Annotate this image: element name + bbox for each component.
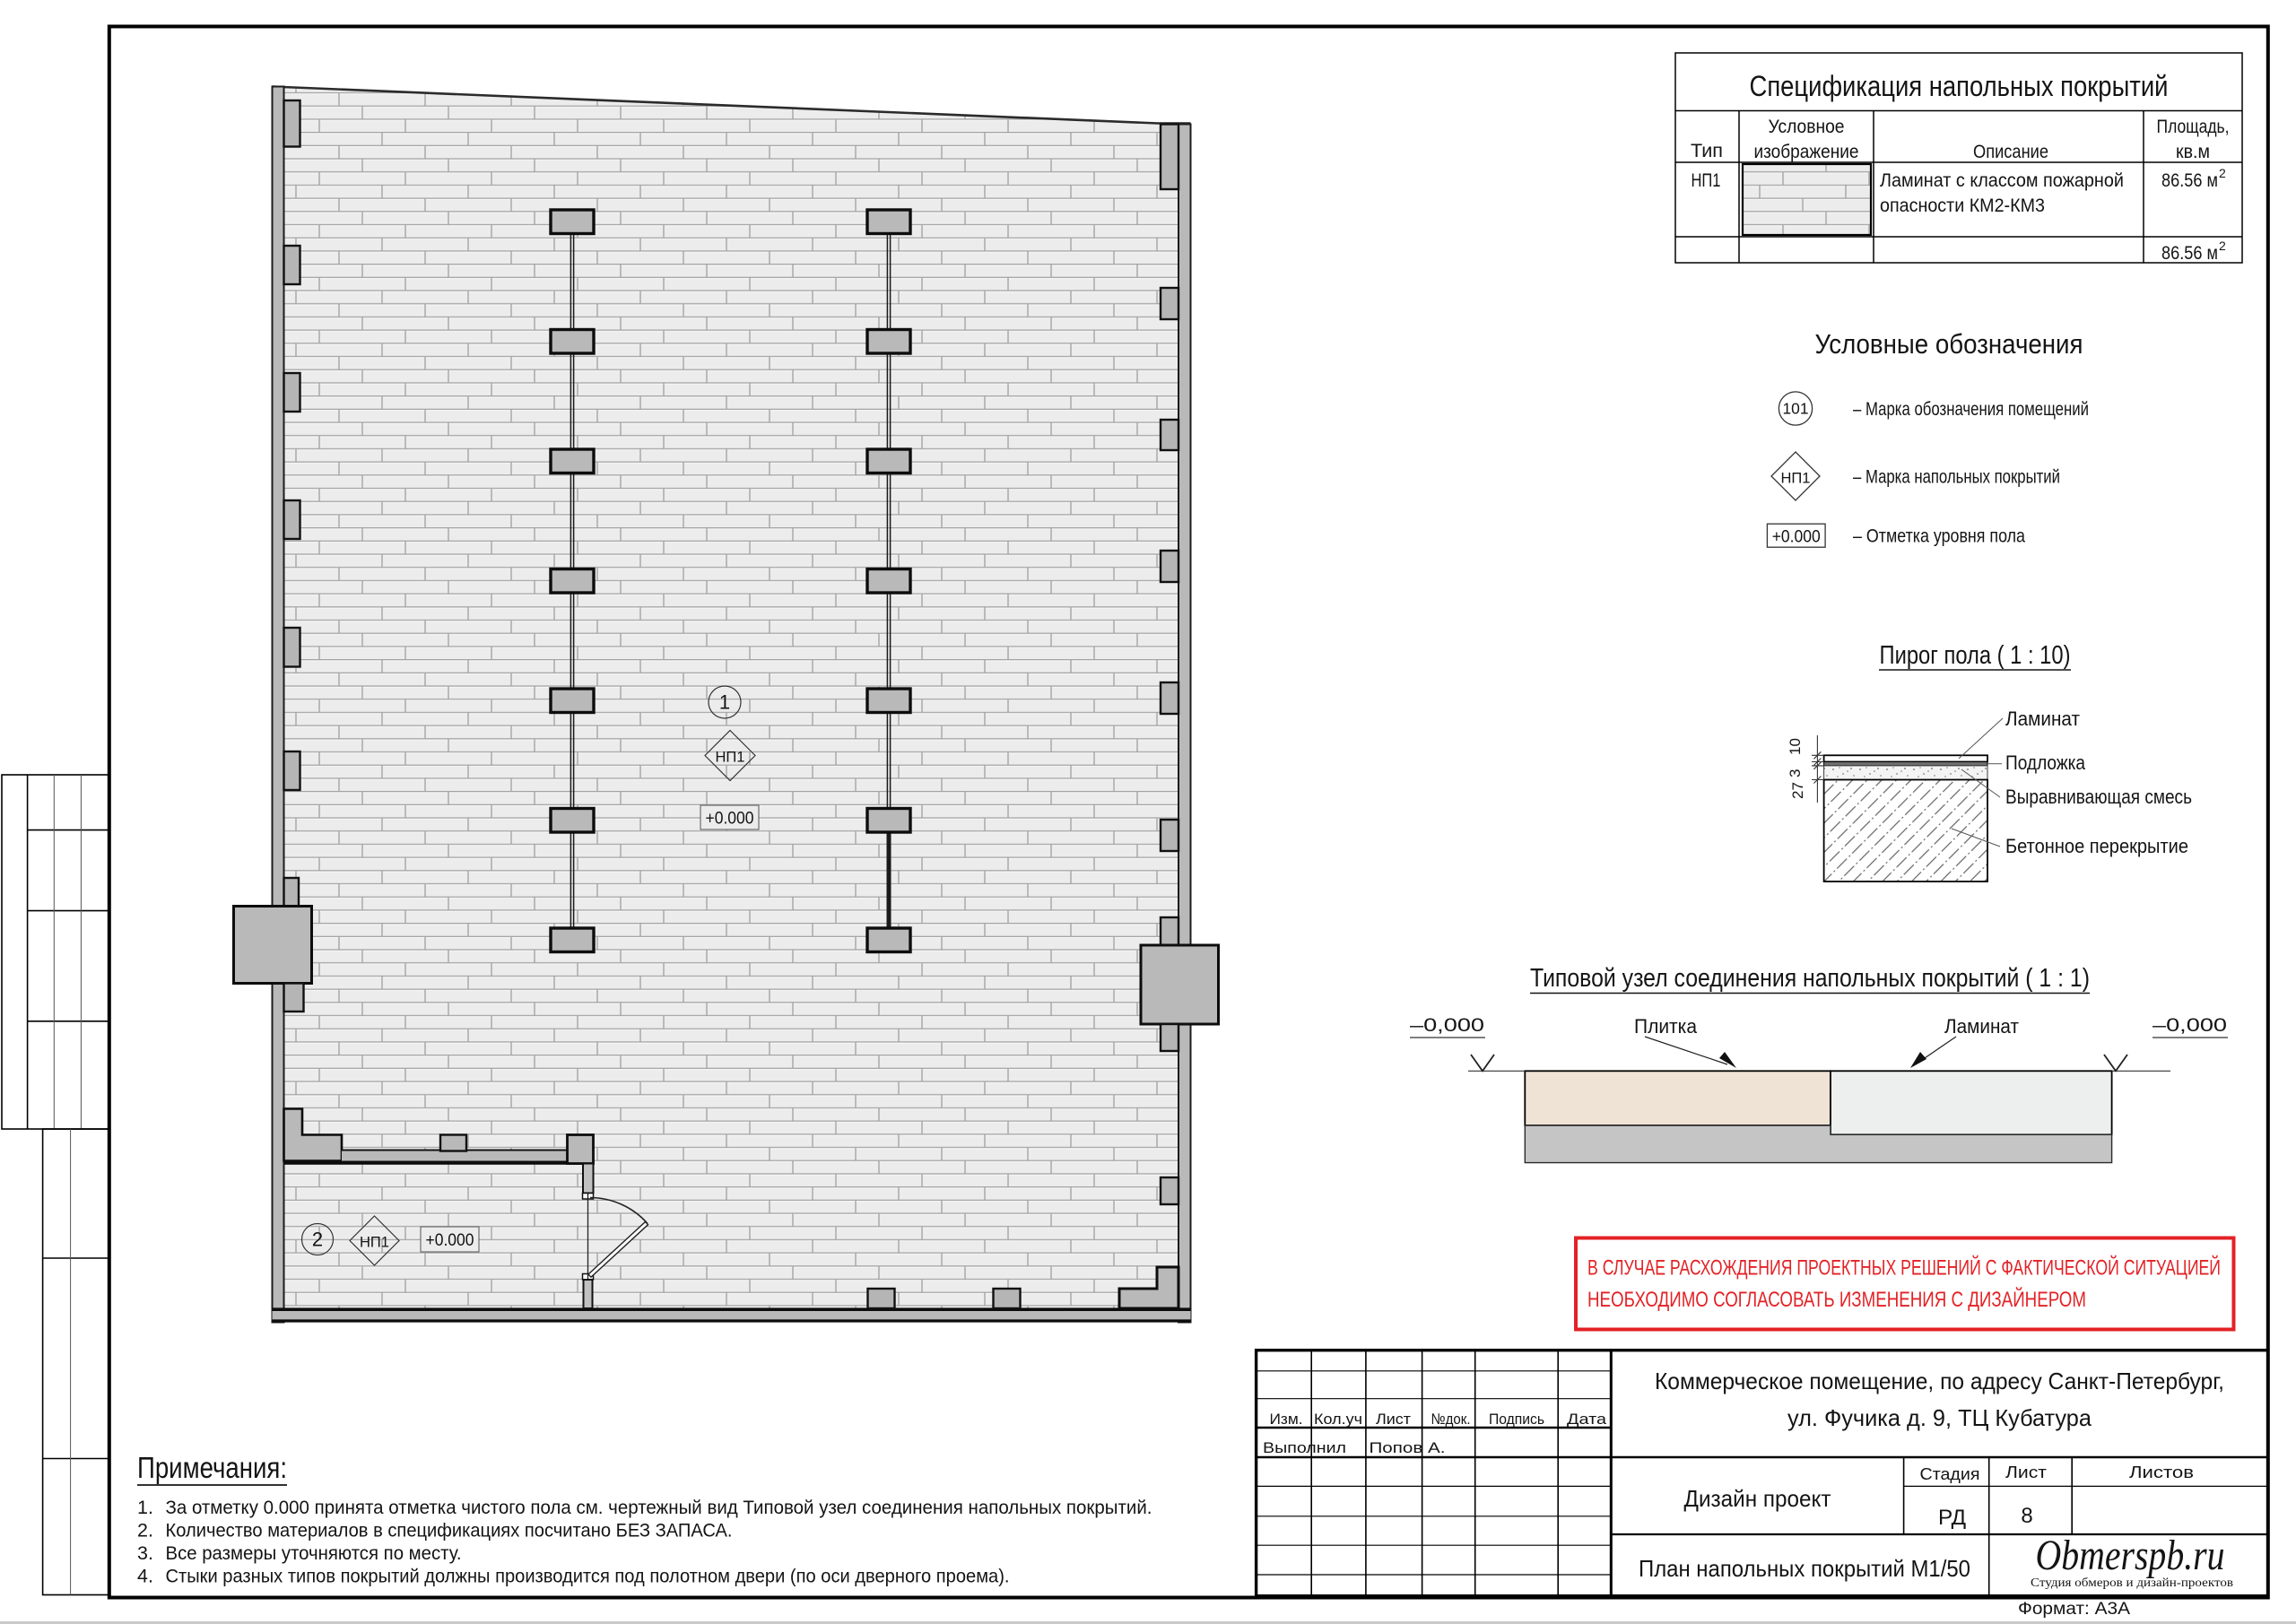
svg-text:+0.000: +0.000 [706,810,754,829]
svg-text:Спецификация напольных покрыти: Спецификация напольных покрытий [1750,70,2169,102]
svg-text:кв.м: кв.м [2176,142,2210,162]
svg-text:Площадь,: Площадь, [2157,117,2230,137]
svg-text:86.56 м: 86.56 м [2161,170,2218,191]
svg-text:Кол.уч: Кол.уч [1314,1411,1362,1428]
svg-text:3.: 3. [137,1542,153,1564]
svg-text:Стадия: Стадия [1920,1465,1980,1483]
svg-text:За отметку 0.000 принята отмет: За отметку 0.000 принята отметка чистого… [166,1497,1152,1518]
svg-text:Листов: Листов [2129,1463,2194,1481]
svg-text:НП1: НП1 [716,749,745,766]
svg-text:+0.000: +0.000 [426,1231,474,1250]
svg-text:Лист: Лист [1376,1411,1411,1428]
svg-text:Попов А.: Попов А. [1370,1439,1446,1456]
svg-text:Изм.: Изм. [1270,1411,1303,1428]
svg-text:Условные обозначения: Условные обозначения [1815,328,2083,360]
svg-text:Ламинат с классом пожарной: Ламинат с классом пожарной [1880,170,2124,191]
svg-text:101: 101 [1783,400,1809,418]
svg-text:Все размеры уточняются по мест: Все размеры уточняются по месту. [166,1542,462,1564]
svg-text:Описание: Описание [1973,142,2048,162]
svg-text:Типовой узел соединения наполь: Типовой узел соединения напольных покрыт… [1530,964,2090,993]
svg-text:Obmerspb.ru: Obmerspb.ru [2036,1532,2225,1579]
svg-text:10: 10 [1787,738,1804,755]
svg-text:2: 2 [312,1229,323,1251]
svg-text:Плитка: Плитка [1634,1015,1697,1038]
svg-text:Лист: Лист [2005,1463,2047,1481]
svg-text:Подпись: Подпись [1489,1411,1544,1428]
svg-text:Примечания:: Примечания: [137,1451,287,1484]
svg-text:НП1: НП1 [1692,170,1721,191]
svg-text:НП1: НП1 [1781,470,1811,487]
svg-text:Дата: Дата [1567,1411,1607,1428]
svg-text:изображение: изображение [1754,142,1859,162]
svg-text:1: 1 [719,691,730,714]
svg-text:–0,000: –0,000 [1410,1015,1484,1036]
svg-text:8: 8 [2021,1504,2032,1528]
svg-text:Ламинат: Ламинат [2005,708,2080,730]
svg-text:№док.: №док. [1431,1411,1471,1428]
svg-text:Условное: Условное [1769,117,1845,137]
svg-text:Стыки разных типов покрытий до: Стыки разных типов покрытий должны произ… [166,1566,1010,1587]
svg-text:РД: РД [1938,1506,1966,1530]
svg-text:86.56 м: 86.56 м [2161,243,2218,264]
svg-text:Коммерческое помещение, по адр: Коммерческое помещение, по адресу Санкт-… [1655,1368,2224,1394]
svg-text:Студия обмеров и дизайн-проект: Студия обмеров и дизайн-проектов [2031,1576,2233,1589]
svg-text:2.: 2. [137,1520,153,1541]
svg-text:Дизайн проект: Дизайн проект [1684,1485,1831,1512]
svg-text:НП1: НП1 [360,1234,389,1251]
svg-text:Тип: Тип [1691,141,1723,161]
svg-text:Пирог пола ( 1 : 10): Пирог пола ( 1 : 10) [1880,641,2071,670]
svg-text:4.: 4. [137,1566,153,1587]
svg-text:Формат: А3А: Формат: А3А [2018,1600,2130,1619]
svg-text:ул. Фучика д. 9, ТЦ Кубатура: ул. Фучика д. 9, ТЦ Кубатура [1787,1404,2092,1431]
svg-text:– Отметка уровня пола: – Отметка уровня пола [1853,526,2025,547]
svg-text:НЕОБХОДИМО СОГЛАСОВАТЬ ИЗМЕНЕН: НЕОБХОДИМО СОГЛАСОВАТЬ ИЗМЕНЕНИЯ С ДИЗАЙ… [1587,1287,2086,1312]
svg-text:3: 3 [1787,769,1804,777]
svg-text:Количество материалов в специф: Количество материалов в спецификациях по… [166,1520,733,1541]
svg-text:+0.000: +0.000 [1772,528,1821,547]
svg-text:опасности КМ2-КМ3: опасности КМ2-КМ3 [1880,195,2045,216]
svg-text:Ламинат: Ламинат [1944,1015,2019,1038]
svg-text:2: 2 [2219,239,2226,253]
svg-text:В СЛУЧАЕ РАСХОЖДЕНИЯ ПРОЕКТНЫХ: В СЛУЧАЕ РАСХОЖДЕНИЯ ПРОЕКТНЫХ РЕШЕНИЙ С… [1587,1255,2221,1281]
svg-text:Бетонное перекрытие: Бетонное перекрытие [2005,835,2188,857]
svg-text:–0,000: –0,000 [2152,1015,2227,1036]
svg-text:Подложка: Подложка [2005,751,2085,774]
svg-text:Выравнивающая смесь: Выравнивающая смесь [2005,786,2192,808]
svg-text:27: 27 [1789,782,1806,799]
svg-text:План напольных покрытий М1/50: План напольных покрытий М1/50 [1639,1555,1970,1582]
svg-text:Выполнил: Выполнил [1263,1439,1346,1456]
svg-text:– Марка обозначения помещений: – Марка обозначения помещений [1853,399,2089,420]
svg-text:1.: 1. [137,1497,153,1518]
svg-text:– Марка напольных покрытий: – Марка напольных покрытий [1853,467,2060,488]
svg-text:2: 2 [2219,166,2226,180]
